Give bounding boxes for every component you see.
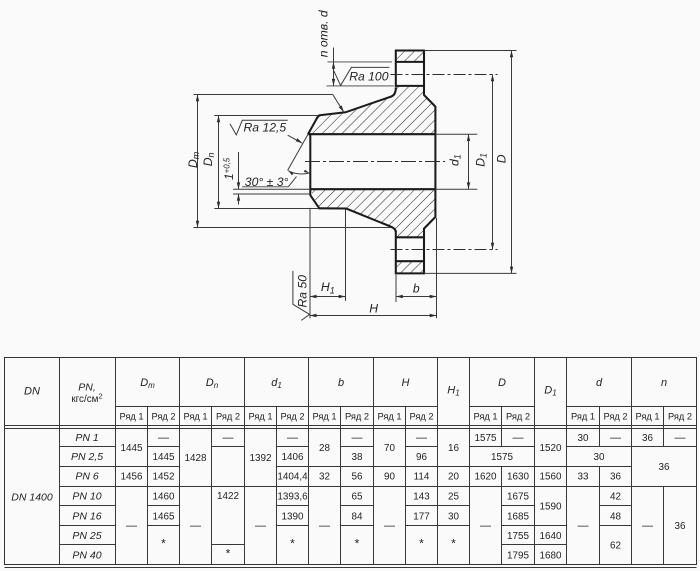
svg-text:PN 6: PN 6 [75, 471, 99, 483]
svg-text:1575: 1575 [491, 452, 513, 463]
svg-text:Ряд 1: Ряд 1 [377, 412, 401, 422]
svg-text:177: 177 [413, 511, 429, 522]
svg-text:d1: d1 [271, 377, 282, 390]
svg-text:Ряд 1: Ряд 1 [312, 412, 336, 422]
svg-text:36: 36 [642, 433, 653, 444]
svg-text:—: — [384, 520, 395, 532]
svg-text:DN 1400: DN 1400 [11, 492, 53, 504]
svg-text:H1: H1 [447, 385, 459, 398]
svg-text:1575: 1575 [475, 433, 497, 444]
svg-text:b: b [338, 377, 344, 389]
svg-text:1445: 1445 [121, 443, 143, 454]
svg-text:143: 143 [413, 492, 430, 503]
svg-text:38: 38 [352, 452, 363, 463]
svg-text:30: 30 [594, 452, 605, 463]
svg-text:1465: 1465 [153, 511, 175, 522]
svg-text:*: * [419, 537, 424, 551]
svg-text:1390: 1390 [282, 511, 304, 522]
svg-text:*: * [355, 537, 360, 551]
svg-text:b: b [413, 282, 420, 296]
svg-text:Dn: Dn [206, 377, 219, 390]
svg-text:1520: 1520 [540, 443, 562, 454]
svg-text:Ряд 2: Ряд 2 [280, 412, 304, 422]
svg-text:30: 30 [578, 433, 589, 444]
svg-text:D: D [495, 154, 509, 163]
svg-text:42: 42 [610, 492, 621, 503]
svg-text:Ra 50: Ra 50 [296, 275, 310, 308]
svg-text:36: 36 [610, 472, 621, 483]
svg-text:PN 2,5: PN 2,5 [71, 451, 103, 463]
svg-text:1630: 1630 [507, 472, 529, 483]
svg-text:Ra 100: Ra 100 [349, 69, 389, 83]
svg-text:1460: 1460 [153, 492, 175, 503]
svg-text:—: — [287, 432, 298, 444]
svg-text:PN 1: PN 1 [75, 432, 98, 444]
svg-text:25: 25 [448, 492, 459, 503]
svg-text:1428: 1428 [185, 453, 207, 464]
svg-text:H1: H1 [321, 280, 335, 296]
svg-text:*: * [161, 537, 166, 551]
svg-text:1422: 1422 [217, 491, 239, 502]
svg-text:56: 56 [352, 472, 363, 483]
svg-text:PN 40: PN 40 [72, 549, 101, 561]
svg-text:H: H [369, 301, 378, 315]
svg-text:48: 48 [610, 511, 621, 522]
svg-text:n: n [661, 377, 667, 389]
svg-text:—: — [255, 520, 266, 532]
svg-text:90: 90 [384, 472, 395, 483]
svg-text:1445: 1445 [153, 452, 175, 463]
svg-text:—: — [126, 520, 137, 532]
svg-text:—: — [578, 520, 589, 532]
svg-text:—: — [190, 520, 201, 532]
svg-text:28: 28 [319, 443, 330, 454]
svg-text:32: 32 [319, 472, 330, 483]
svg-text:PN,: PN, [78, 381, 96, 393]
svg-text:Ряд 2: Ряд 2 [506, 412, 530, 422]
svg-text:*: * [451, 537, 456, 551]
svg-text:1404,4: 1404,4 [277, 472, 308, 483]
svg-text:*: * [290, 537, 295, 551]
svg-text:Ra 12,5: Ra 12,5 [244, 121, 287, 135]
svg-text:1640: 1640 [540, 531, 562, 542]
svg-text:PN 25: PN 25 [72, 530, 101, 542]
svg-text:кгс/см2: кгс/см2 [71, 392, 102, 406]
svg-text:1456: 1456 [121, 472, 143, 483]
svg-text:Ряд 1: Ряд 1 [635, 412, 659, 422]
svg-text:1620: 1620 [475, 472, 497, 483]
svg-text:Ряд 2: Ряд 2 [151, 412, 175, 422]
svg-text:114: 114 [414, 472, 430, 483]
svg-text:Ряд 1: Ряд 1 [183, 412, 207, 422]
svg-text:1406: 1406 [282, 452, 304, 463]
svg-text:Ряд 2: Ряд 2 [409, 412, 433, 422]
svg-text:1560: 1560 [540, 472, 562, 483]
svg-text:PN 10: PN 10 [72, 491, 101, 503]
svg-text:Ряд 2: Ряд 2 [603, 412, 627, 422]
svg-text:Ряд 2: Ряд 2 [668, 412, 692, 422]
svg-text:—: — [352, 432, 363, 444]
svg-text:*: * [226, 547, 231, 561]
svg-text:Ряд 2: Ряд 2 [345, 412, 369, 422]
svg-text:96: 96 [416, 452, 427, 463]
svg-text:H: H [402, 377, 410, 389]
svg-text:1393,6: 1393,6 [277, 492, 308, 503]
svg-text:1685: 1685 [507, 511, 529, 522]
svg-text:D1: D1 [474, 153, 489, 167]
svg-text:PN 16: PN 16 [72, 510, 101, 522]
svg-text:Ряд 2: Ряд 2 [216, 412, 240, 422]
svg-text:16: 16 [448, 443, 459, 454]
svg-text:D: D [498, 377, 506, 389]
svg-text:33: 33 [578, 472, 589, 483]
svg-text:DN: DN [24, 386, 40, 398]
svg-text:1795: 1795 [507, 550, 529, 561]
svg-text:—: — [319, 520, 330, 532]
svg-text:d1: d1 [448, 154, 463, 166]
svg-text:1590: 1590 [540, 502, 562, 513]
svg-text:—: — [610, 432, 621, 444]
svg-text:—: — [223, 432, 234, 444]
svg-text:Dm: Dm [186, 151, 201, 168]
svg-text:65: 65 [352, 492, 363, 503]
svg-text:30: 30 [448, 511, 459, 522]
svg-text:36: 36 [675, 521, 686, 532]
svg-text:1392: 1392 [250, 453, 272, 464]
svg-text:Ряд 1: Ряд 1 [571, 412, 595, 422]
svg-text:Dn: Dn [201, 152, 216, 166]
svg-text:n отв. d: n отв. d [316, 9, 330, 57]
svg-text:1755: 1755 [507, 531, 529, 542]
svg-text:—: — [513, 432, 524, 444]
svg-text:—: — [675, 432, 686, 444]
svg-text:1680: 1680 [540, 550, 562, 561]
svg-text:Ряд 1: Ряд 1 [473, 412, 497, 422]
svg-text:Ряд 1: Ряд 1 [119, 412, 143, 422]
svg-text:1+0,5: 1+0,5 [222, 157, 236, 180]
svg-text:—: — [158, 432, 169, 444]
svg-text:20: 20 [448, 472, 459, 483]
svg-text:Ряд 1: Ряд 1 [248, 412, 272, 422]
svg-text:62: 62 [610, 541, 621, 552]
svg-text:84: 84 [352, 511, 363, 522]
svg-text:d: d [596, 377, 603, 389]
svg-text:Dm: Dm [140, 377, 155, 390]
svg-text:—: — [642, 520, 653, 532]
svg-text:1675: 1675 [507, 492, 529, 503]
svg-text:D1: D1 [544, 385, 556, 398]
svg-text:—: — [480, 520, 491, 532]
svg-text:—: — [416, 432, 427, 444]
svg-text:36: 36 [659, 462, 670, 473]
svg-text:1452: 1452 [153, 472, 175, 483]
svg-text:70: 70 [384, 443, 395, 454]
